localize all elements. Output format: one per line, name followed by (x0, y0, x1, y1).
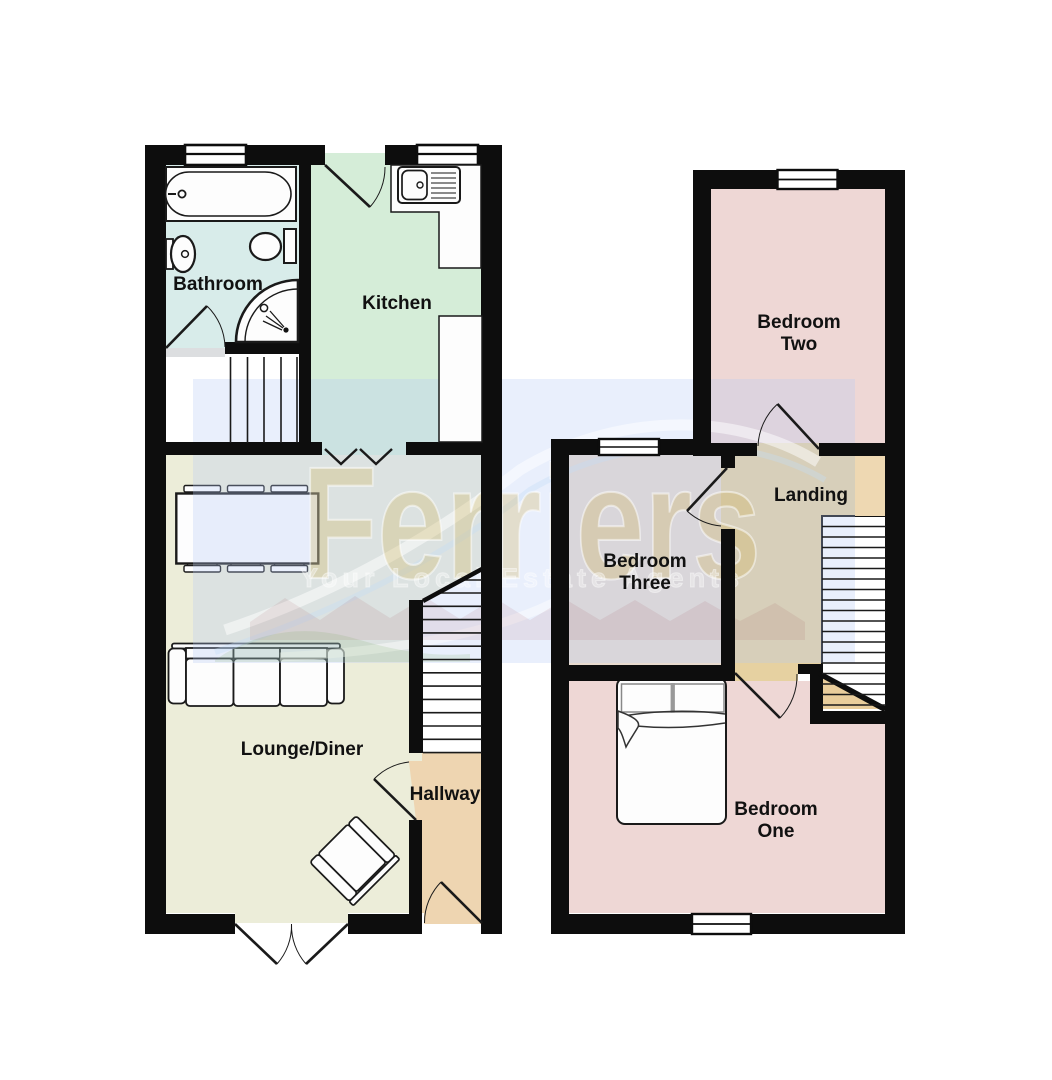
svg-text:Bathroom: Bathroom (173, 274, 263, 295)
svg-text:Three: Three (619, 573, 671, 594)
svg-text:Bedroom: Bedroom (734, 799, 817, 820)
svg-text:Bedroom: Bedroom (757, 312, 840, 333)
svg-text:Kitchen: Kitchen (362, 293, 432, 314)
svg-text:Landing: Landing (774, 485, 848, 506)
svg-text:Bedroom: Bedroom (603, 551, 686, 572)
svg-text:Two: Two (781, 334, 818, 355)
svg-text:Lounge/Diner: Lounge/Diner (241, 739, 364, 760)
svg-text:Hallway: Hallway (410, 784, 481, 805)
svg-text:One: One (758, 821, 795, 842)
